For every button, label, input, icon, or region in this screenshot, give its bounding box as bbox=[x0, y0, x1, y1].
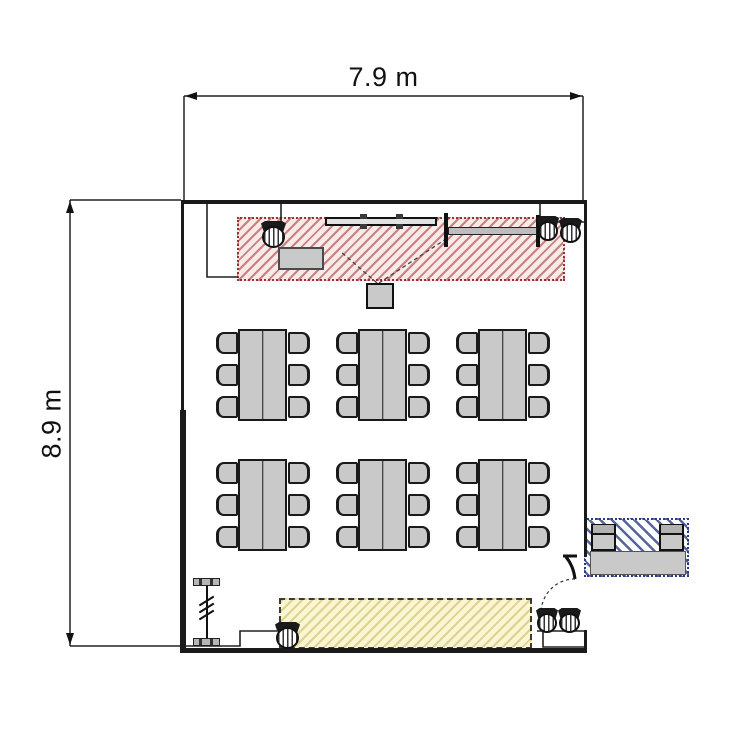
chair bbox=[408, 364, 430, 386]
projector bbox=[366, 283, 394, 309]
double-table bbox=[358, 329, 407, 421]
room-width-label: 7.9 m bbox=[184, 62, 583, 93]
chair bbox=[216, 494, 238, 516]
chair bbox=[408, 396, 430, 418]
lecturer-desk bbox=[278, 247, 324, 270]
chair bbox=[456, 494, 478, 516]
chair bbox=[288, 494, 310, 516]
wall-bottom bbox=[181, 648, 587, 653]
wall-right bbox=[584, 200, 587, 557]
chair bbox=[456, 462, 478, 484]
room-height-label: 8.9 m bbox=[37, 386, 68, 462]
chair bbox=[216, 364, 238, 386]
arrow-right bbox=[570, 92, 582, 100]
door-leaf bbox=[563, 556, 577, 579]
chair bbox=[336, 494, 358, 516]
chair-back bbox=[593, 525, 614, 535]
chair bbox=[456, 364, 478, 386]
stool-seat bbox=[560, 223, 581, 243]
table-group bbox=[335, 459, 430, 551]
table-group bbox=[455, 459, 550, 551]
arrow-down bbox=[66, 633, 74, 645]
chair bbox=[528, 526, 550, 548]
whiteboard-clip-icon bbox=[396, 214, 403, 219]
whiteboard-clip-icon bbox=[396, 224, 403, 229]
chair bbox=[408, 462, 430, 484]
table-divider bbox=[382, 461, 384, 549]
chair bbox=[408, 494, 430, 516]
stool-front-left bbox=[261, 221, 286, 248]
chair bbox=[336, 526, 358, 548]
wall-detail-lines bbox=[184, 204, 584, 647]
chair bbox=[288, 364, 310, 386]
chair bbox=[528, 396, 550, 418]
chair bbox=[336, 396, 358, 418]
chair bbox=[336, 462, 358, 484]
stool-back-right-2 bbox=[558, 608, 581, 633]
stool-seat bbox=[559, 613, 580, 633]
table-divider bbox=[262, 331, 264, 419]
radiator-bar-top bbox=[193, 578, 220, 586]
arrow-left bbox=[185, 92, 197, 100]
stool-front-right-2 bbox=[559, 218, 582, 243]
corridor-bench bbox=[590, 551, 686, 575]
table-group bbox=[215, 329, 310, 421]
arrow-up bbox=[66, 201, 74, 213]
projector-beam bbox=[340, 237, 449, 283]
chair bbox=[288, 462, 310, 484]
table-group bbox=[455, 329, 550, 421]
stool-back-right-1 bbox=[536, 608, 558, 633]
double-table bbox=[238, 329, 287, 421]
chair bbox=[336, 332, 358, 354]
chair bbox=[408, 526, 430, 548]
stool-seat bbox=[262, 226, 285, 248]
table-divider bbox=[502, 331, 504, 419]
stool-seat bbox=[538, 221, 558, 241]
chair bbox=[456, 396, 478, 418]
chair bbox=[528, 364, 550, 386]
table-divider bbox=[502, 461, 504, 549]
floor-plan: 7.9 m 8.9 m bbox=[0, 0, 750, 750]
radiator-bar-bottom bbox=[193, 638, 220, 646]
chair bbox=[456, 332, 478, 354]
corridor-chair bbox=[659, 524, 684, 551]
double-table bbox=[358, 459, 407, 551]
chair bbox=[288, 332, 310, 354]
stool-front-right-1 bbox=[537, 216, 559, 241]
stool-seat bbox=[537, 613, 557, 633]
table-divider bbox=[262, 461, 264, 549]
whiteboard bbox=[325, 217, 437, 226]
wall-right-stub bbox=[584, 630, 587, 651]
table-group bbox=[215, 459, 310, 551]
chair bbox=[528, 494, 550, 516]
table-divider bbox=[382, 331, 384, 419]
width-dimension-line bbox=[184, 96, 583, 200]
chair bbox=[216, 526, 238, 548]
chair bbox=[288, 396, 310, 418]
double-table bbox=[478, 459, 527, 551]
chair bbox=[528, 332, 550, 354]
height-dimension-line bbox=[70, 200, 181, 646]
table-group bbox=[335, 329, 430, 421]
chair bbox=[288, 526, 310, 548]
chair bbox=[408, 332, 430, 354]
double-table bbox=[238, 459, 287, 551]
chair-back bbox=[661, 525, 682, 535]
chair bbox=[336, 364, 358, 386]
corridor-chair bbox=[591, 524, 616, 551]
stool-seat bbox=[276, 627, 299, 649]
stool-back-left bbox=[275, 622, 300, 649]
whiteboard-clip-icon bbox=[360, 224, 367, 229]
wall-left-upper bbox=[181, 200, 184, 412]
chair bbox=[528, 462, 550, 484]
chair bbox=[456, 526, 478, 548]
chair bbox=[216, 396, 238, 418]
chair bbox=[216, 332, 238, 354]
wall-top bbox=[184, 200, 587, 204]
projection-screen bbox=[448, 227, 537, 235]
double-table bbox=[478, 329, 527, 421]
whiteboard-clip-icon bbox=[360, 214, 367, 219]
wall-left-lower bbox=[180, 410, 186, 653]
chair bbox=[216, 462, 238, 484]
